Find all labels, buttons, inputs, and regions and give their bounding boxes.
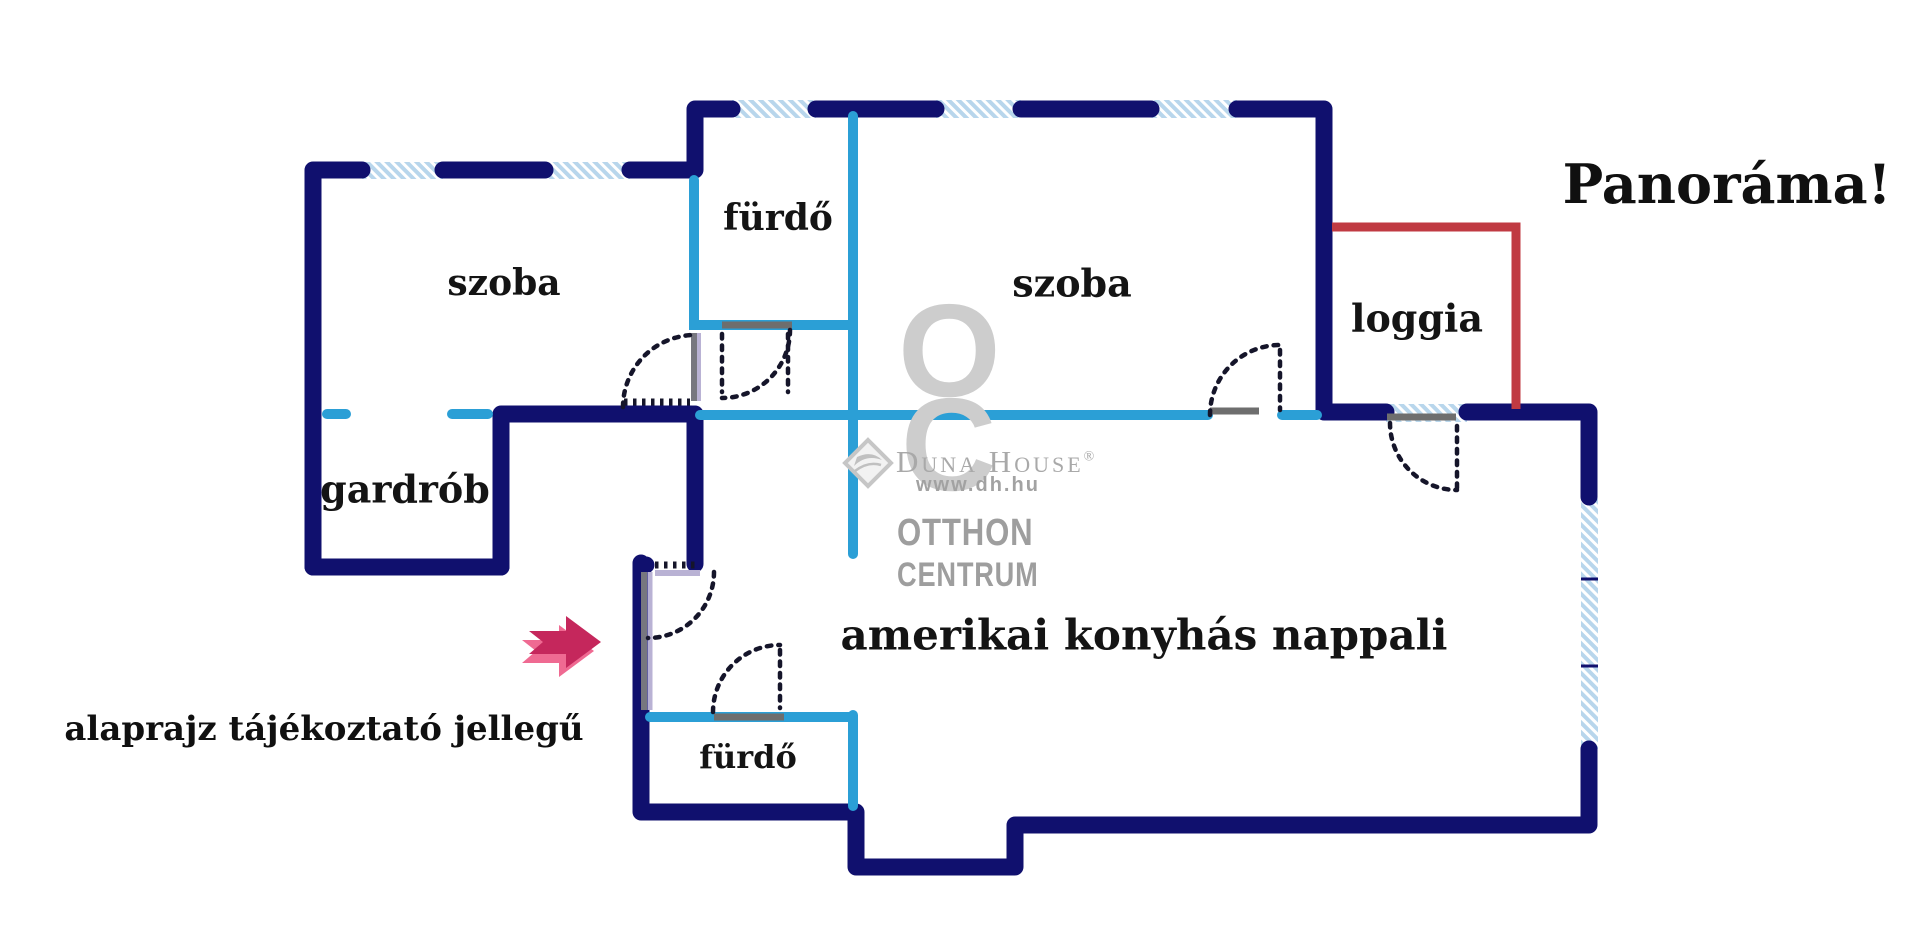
arc-entry (648, 572, 714, 638)
window-right-wall (1581, 497, 1598, 749)
room-label-bathroom-bottom: fürdő (699, 738, 797, 776)
window-top-1 (732, 100, 816, 118)
window-bedroom-left-2 (545, 162, 630, 179)
room-label-living-room: amerikai konyhás nappali (840, 611, 1447, 660)
arc-bathroom-top (722, 330, 790, 398)
room-label-loggia: loggia (1351, 296, 1483, 341)
arc-loggia (1390, 423, 1457, 490)
window-top-2 (936, 100, 1021, 118)
arc-bathroom-bottom (713, 645, 780, 712)
window-bedroom-left-1 (362, 162, 443, 179)
watermark-url: www.dh.hu (916, 474, 1040, 497)
room-label-wardrobe: gardrób (320, 467, 490, 512)
window-top-3 (1151, 100, 1237, 118)
panorama-note: Panoráma! (1563, 152, 1892, 216)
room-label-bathroom-top: fürdő (723, 197, 833, 239)
entrance-arrow-icon (522, 616, 601, 677)
registered-mark: ® (1084, 450, 1095, 465)
room-label-bedroom-main: szoba (1012, 261, 1132, 306)
arc-hall-door (623, 335, 695, 407)
watermark-otthon: OTTHON (897, 512, 1033, 555)
room-label-bedroom-left: szoba (447, 262, 560, 304)
disclaimer-note: alaprajz tájékoztató jellegű (64, 709, 583, 749)
watermark-centrum: CENTRUM (897, 556, 1039, 595)
arc-bedroom-main (1210, 345, 1280, 415)
floor-plan-canvas: O C Duna House® www.dh.hu OTTHON CENTRUM… (0, 0, 1920, 934)
